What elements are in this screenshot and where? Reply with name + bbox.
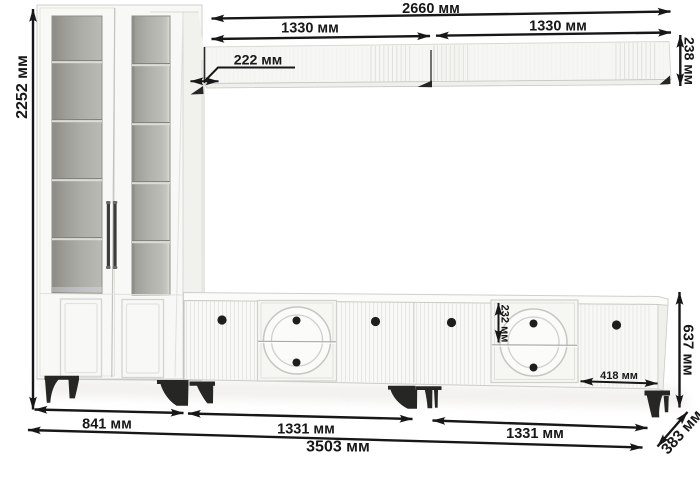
- svg-text:232 мм: 232 мм: [499, 305, 511, 343]
- svg-text:1330 мм: 1330 мм: [529, 19, 587, 35]
- svg-text:841 мм: 841 мм: [82, 417, 132, 433]
- svg-text:2660 мм: 2660 мм: [402, 1, 460, 17]
- svg-text:2252 мм: 2252 мм: [14, 55, 31, 119]
- svg-text:238 мм: 238 мм: [682, 37, 698, 85]
- svg-text:1331 мм: 1331 мм: [277, 422, 335, 438]
- svg-text:3503 мм: 3503 мм: [306, 439, 370, 456]
- svg-text:418 мм: 418 мм: [600, 370, 638, 382]
- svg-text:1331 мм: 1331 мм: [506, 426, 564, 442]
- svg-text:222 мм: 222 мм: [234, 53, 283, 69]
- svg-text:637 мм: 637 мм: [680, 324, 697, 375]
- svg-text:1330 мм: 1330 мм: [281, 21, 339, 37]
